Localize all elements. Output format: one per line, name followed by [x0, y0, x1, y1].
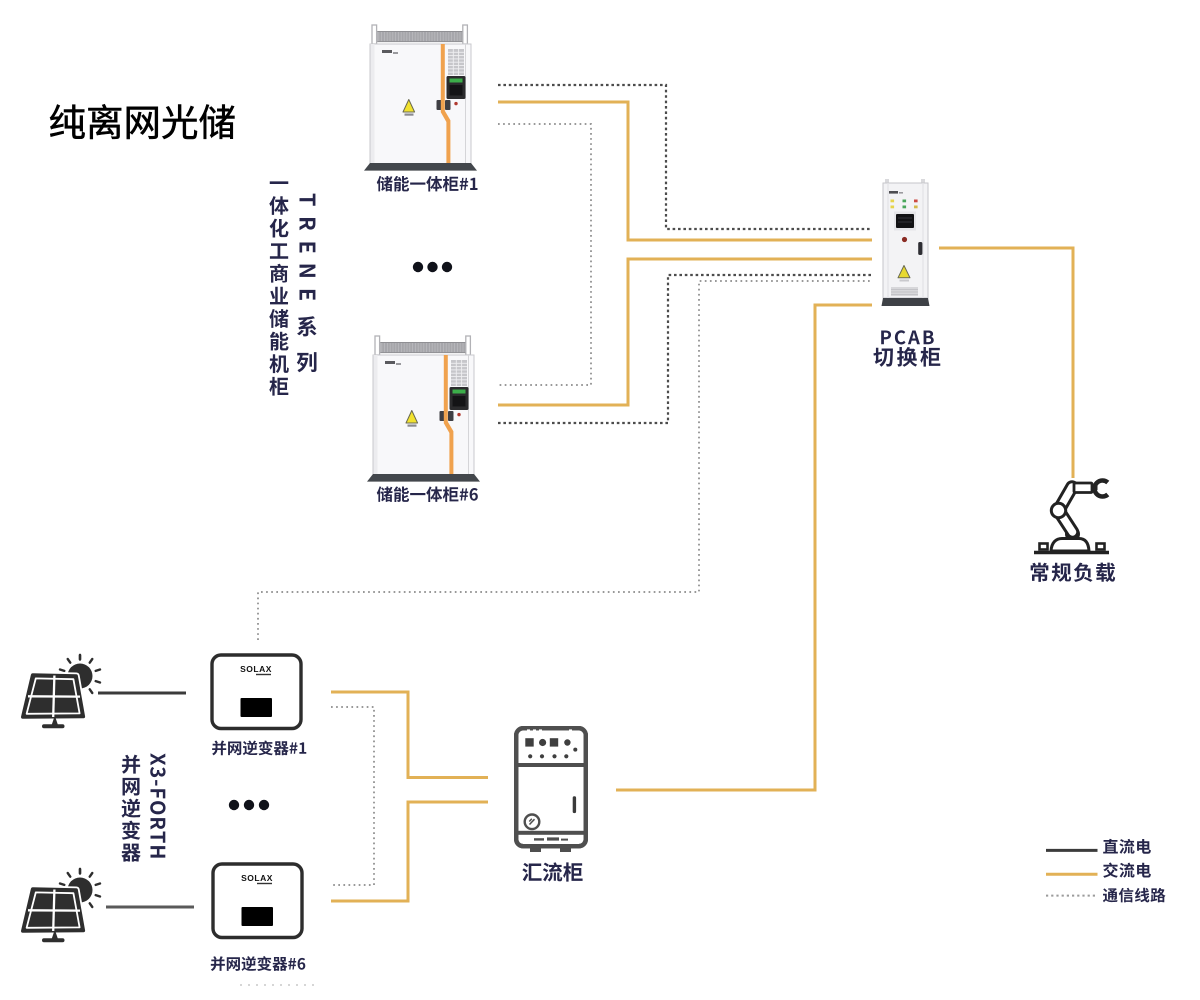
svg-text:SOLAX: SOLAX	[240, 664, 272, 674]
svg-text:SOLAX: SOLAX	[241, 873, 273, 883]
